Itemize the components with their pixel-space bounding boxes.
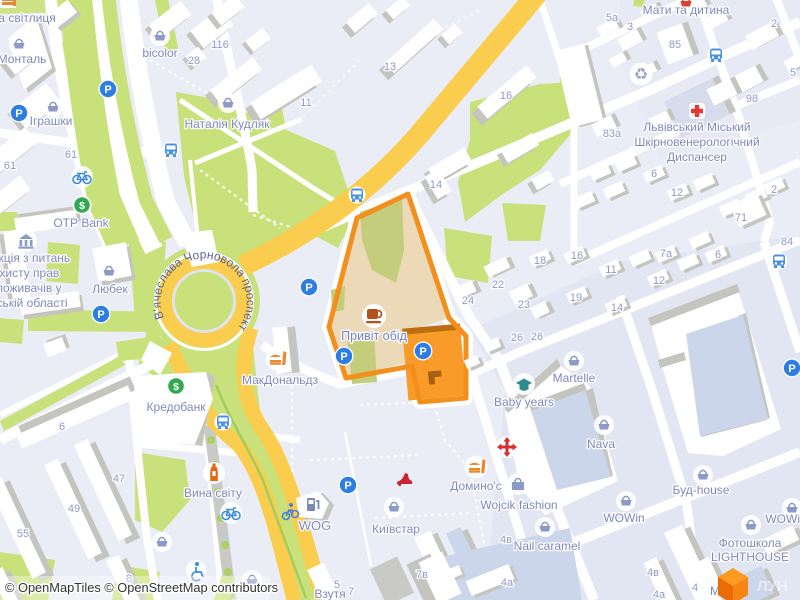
svg-text:14: 14 <box>430 179 442 191</box>
svg-text:26: 26 <box>531 331 543 343</box>
svg-text:5: 5 <box>790 67 796 79</box>
svg-text:83а: 83а <box>603 128 622 140</box>
svg-text:WOWin: WOWin <box>765 512 800 526</box>
svg-text:49: 49 <box>68 503 80 515</box>
svg-text:♻: ♻ <box>634 67 648 84</box>
svg-text:7а: 7а <box>660 248 673 260</box>
svg-text:6: 6 <box>59 421 65 433</box>
svg-text:Мати та дитина: Мати та дитина <box>643 3 730 17</box>
svg-text:bicolor: bicolor <box>142 46 177 60</box>
svg-text:WOWin: WOWin <box>603 511 644 525</box>
svg-text:98: 98 <box>746 93 758 105</box>
svg-text:61: 61 <box>4 160 16 172</box>
svg-text:Любек: Любек <box>92 282 128 296</box>
svg-text:P: P <box>104 84 111 96</box>
svg-text:6: 6 <box>651 168 657 180</box>
svg-text:6: 6 <box>715 249 721 261</box>
svg-text:P: P <box>788 363 795 375</box>
svg-text:P: P <box>305 282 312 294</box>
svg-text:Наталія Кудляк: Наталія Кудляк <box>185 117 271 131</box>
svg-text:WOG: WOG <box>299 518 332 533</box>
svg-text:Диспансер: Диспансер <box>667 150 727 164</box>
svg-text:ЛУН: ЛУН <box>757 578 788 595</box>
svg-text:P: P <box>419 346 426 358</box>
svg-text:P: P <box>15 108 22 120</box>
svg-text:Іграшки: Іграшки <box>30 114 73 128</box>
svg-text:екція з питань: екція з питань <box>0 251 70 265</box>
svg-text:Вина світу: Вина світу <box>184 486 242 500</box>
svg-text:Baby years: Baby years <box>494 395 554 409</box>
svg-text:16: 16 <box>500 90 512 102</box>
svg-text:Wojcik fashion: Wojcik fashion <box>480 498 557 512</box>
svg-text:P: P <box>97 309 104 321</box>
svg-text:84: 84 <box>781 236 793 248</box>
svg-text:85: 85 <box>669 39 681 51</box>
svg-text:Буд-house: Буд-house <box>673 483 730 497</box>
svg-text:12: 12 <box>653 275 665 287</box>
svg-text:2: 2 <box>771 184 777 196</box>
svg-text:Кредобанк: Кредобанк <box>147 400 207 414</box>
svg-text:Nava: Nava <box>587 437 615 451</box>
svg-text:71: 71 <box>735 212 747 224</box>
svg-text:$: $ <box>79 200 85 212</box>
svg-text:12: 12 <box>671 187 683 199</box>
svg-text:поживачів у: поживачів у <box>0 281 62 295</box>
svg-text:Домино'с: Домино'с <box>450 479 501 493</box>
svg-text:ській області: ській області <box>0 296 68 310</box>
svg-text:24: 24 <box>462 295 474 307</box>
svg-text:ОТР Bank: ОТР Bank <box>53 216 109 230</box>
svg-text:МакДональдз: МакДональдз <box>242 373 319 387</box>
svg-text:Монталь: Монталь <box>0 52 46 66</box>
svg-text:55: 55 <box>17 528 29 540</box>
svg-text:3: 3 <box>627 21 633 33</box>
svg-text:LIGHTHOUSE: LIGHTHOUSE <box>711 550 789 564</box>
svg-text:7: 7 <box>348 586 354 598</box>
svg-text:22: 22 <box>492 279 504 291</box>
svg-text:26: 26 <box>511 332 523 344</box>
svg-text:P: P <box>344 480 351 492</box>
svg-text:61: 61 <box>65 149 77 161</box>
svg-text:4: 4 <box>692 582 698 594</box>
svg-text:47: 47 <box>113 473 125 485</box>
svg-text:11: 11 <box>300 97 311 109</box>
svg-text:Martelle: Martelle <box>553 371 596 385</box>
svg-text:$: $ <box>173 381 179 393</box>
svg-text:Привіт обід: Привіт обід <box>341 329 407 343</box>
svg-text:Львівський Міський: Львівський Міський <box>643 120 750 134</box>
svg-text:116: 116 <box>211 39 229 51</box>
svg-text:2: 2 <box>771 18 777 30</box>
svg-text:4а: 4а <box>653 589 666 600</box>
svg-text:Взутя: Взутя <box>314 587 345 600</box>
svg-text:7в: 7в <box>416 569 428 581</box>
svg-text:4в: 4в <box>500 534 512 546</box>
svg-text:19: 19 <box>570 292 582 304</box>
svg-text:а світлиця: а світлиця <box>0 11 56 25</box>
svg-text:13: 13 <box>384 61 396 73</box>
svg-text:© OpenMapTiles © OpenStreetMap: © OpenMapTiles © OpenStreetMap contribut… <box>5 580 278 595</box>
svg-text:P: P <box>340 351 347 363</box>
svg-text:23: 23 <box>518 299 530 311</box>
svg-text:18: 18 <box>534 255 546 267</box>
svg-text:Київстар: Київстар <box>372 522 420 536</box>
svg-text:14: 14 <box>611 302 623 314</box>
svg-text:ахисту прав: ахисту прав <box>0 266 59 280</box>
svg-text:Фотошкола: Фотошкола <box>719 536 782 550</box>
svg-text:16: 16 <box>571 250 583 262</box>
svg-text:28: 28 <box>188 55 200 67</box>
svg-text:4в: 4в <box>647 567 659 579</box>
svg-text:Nail caramel: Nail caramel <box>514 539 581 553</box>
svg-text:Шкірновенерологічний: Шкірновенерологічний <box>634 135 759 149</box>
svg-text:4а: 4а <box>501 577 514 589</box>
svg-text:11: 11 <box>605 264 616 276</box>
svg-text:5а: 5а <box>606 12 619 24</box>
